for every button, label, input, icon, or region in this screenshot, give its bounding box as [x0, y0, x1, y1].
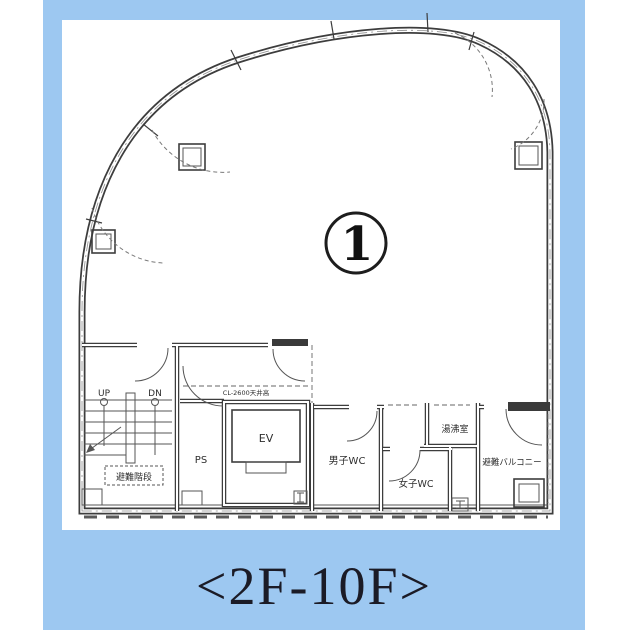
womens-wc-label: 女子WC: [398, 478, 433, 490]
dn-label: DN: [148, 389, 162, 399]
kitchenette-label: 湯沸室: [441, 423, 468, 435]
floor-range-caption: <2F-10F>: [196, 556, 432, 616]
floor-plan-canvas: CL-2600天井高 UP DN 避難階段 PS EV: [0, 0, 630, 630]
evac-stairs-label: 避難階段: [116, 471, 152, 483]
unit-number: 1: [341, 217, 374, 272]
balcony-top-wall: [508, 402, 550, 411]
unit-number-badge: 1: [326, 213, 386, 273]
evac-balcony-label: 避難バルコニー: [482, 457, 541, 468]
wall-lintel: [272, 339, 308, 346]
mens-wc-label: 男子WC: [329, 455, 366, 467]
ps-label: PS: [195, 455, 207, 466]
floor-plan-page: CL-2600天井高 UP DN 避難階段 PS EV: [0, 0, 630, 630]
ceiling-height-note: CL-2600天井高: [223, 388, 270, 397]
ev-label: EV: [259, 432, 274, 445]
up-label: UP: [98, 389, 111, 399]
